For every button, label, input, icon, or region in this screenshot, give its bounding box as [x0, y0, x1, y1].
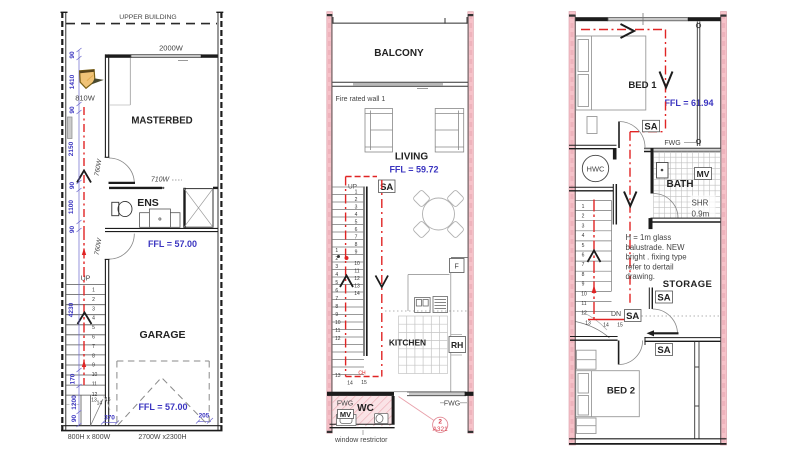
svg-text:13: 13	[335, 373, 341, 379]
svg-text:3: 3	[355, 205, 358, 211]
svg-text:90: 90	[69, 182, 76, 190]
svg-text:1: 1	[335, 248, 338, 254]
svg-text:BED 1: BED 1	[628, 80, 657, 91]
svg-text:1200: 1200	[71, 395, 78, 410]
svg-text:FFL = 61.94: FFL = 61.94	[664, 98, 713, 108]
svg-text:11: 11	[581, 301, 586, 307]
svg-text:WC: WC	[357, 403, 374, 414]
svg-text:6: 6	[355, 227, 358, 233]
svg-text:13: 13	[354, 284, 360, 290]
svg-text:SA: SA	[657, 293, 670, 304]
svg-text:6: 6	[582, 253, 585, 259]
svg-text:15: 15	[617, 323, 623, 329]
svg-text:MV: MV	[697, 169, 710, 179]
svg-text:BED 2: BED 2	[607, 386, 635, 397]
svg-text:UPPER BUILDING: UPPER BUILDING	[119, 14, 176, 21]
svg-text:BATH: BATH	[666, 179, 693, 190]
svg-text:FFL = 57.00: FFL = 57.00	[148, 239, 197, 249]
svg-text:8: 8	[335, 304, 338, 310]
svg-text:7: 7	[355, 235, 358, 241]
svg-text:3: 3	[582, 223, 585, 229]
svg-text:6: 6	[335, 288, 338, 294]
svg-text:1410: 1410	[69, 74, 76, 89]
svg-text:11: 11	[354, 269, 359, 275]
svg-text:5: 5	[92, 325, 95, 331]
svg-text:4: 4	[582, 233, 585, 239]
svg-text:7: 7	[92, 344, 95, 350]
svg-text:DN: DN	[611, 311, 621, 318]
svg-text:MASTERBED: MASTERBED	[131, 116, 192, 127]
svg-text:STORAGE: STORAGE	[663, 279, 713, 290]
svg-text:15: 15	[361, 380, 367, 386]
svg-text:2000W: 2000W	[159, 44, 184, 53]
svg-text:KITCHEN: KITCHEN	[389, 338, 426, 348]
svg-text:4: 4	[355, 212, 358, 218]
svg-text:refer to dertail: refer to dertail	[626, 262, 674, 271]
svg-text:15: 15	[105, 397, 111, 403]
svg-text:H = 1m glass: H = 1m glass	[626, 233, 672, 242]
svg-text:RH: RH	[451, 340, 463, 350]
svg-text:370: 370	[104, 415, 115, 422]
svg-text:ENS: ENS	[137, 197, 159, 209]
svg-text:11: 11	[92, 382, 97, 388]
svg-text:0.9m: 0.9m	[692, 210, 710, 219]
svg-text:7: 7	[582, 262, 585, 268]
svg-text:3: 3	[335, 264, 338, 270]
svg-text:7: 7	[335, 296, 338, 302]
svg-text:1100: 1100	[68, 200, 75, 214]
svg-text:FFL = 57.00: FFL = 57.00	[138, 402, 187, 412]
svg-text:800H x 800W: 800H x 800W	[68, 434, 111, 441]
svg-text:6: 6	[92, 335, 95, 341]
svg-text:window restrictor: window restrictor	[334, 437, 388, 444]
svg-text:205: 205	[199, 413, 210, 420]
svg-text:Fire rated wall 1: Fire rated wall 1	[336, 96, 386, 103]
svg-text:drawing.: drawing.	[626, 272, 655, 281]
svg-text:9: 9	[92, 363, 95, 369]
svg-text:10: 10	[581, 291, 587, 297]
svg-text:8: 8	[582, 272, 585, 278]
svg-text:14: 14	[354, 291, 360, 297]
svg-text:10: 10	[354, 261, 360, 267]
svg-text:2150: 2150	[68, 141, 75, 156]
svg-text:FFL = 59.72: FFL = 59.72	[389, 165, 438, 175]
svg-text:3: 3	[92, 306, 95, 312]
svg-text:90: 90	[69, 226, 76, 234]
svg-text:90: 90	[71, 415, 78, 423]
svg-text:FWG: FWG	[444, 401, 460, 408]
svg-text:2: 2	[355, 197, 358, 203]
svg-text:8: 8	[92, 353, 95, 359]
svg-text:F: F	[455, 264, 459, 271]
svg-text:14: 14	[97, 401, 103, 407]
svg-text:12: 12	[354, 276, 360, 282]
svg-text:1: 1	[92, 288, 95, 294]
svg-text:710W: 710W	[151, 177, 171, 184]
svg-text:810W: 810W	[75, 94, 96, 103]
svg-text:5: 5	[355, 220, 358, 226]
svg-text:12: 12	[581, 311, 587, 317]
svg-text:9: 9	[335, 312, 338, 318]
svg-text:A321: A321	[433, 426, 449, 433]
svg-text:14: 14	[603, 323, 609, 329]
svg-text:MV: MV	[340, 410, 351, 419]
svg-text:GARAGE: GARAGE	[139, 329, 185, 341]
svg-text:10: 10	[92, 372, 98, 378]
svg-text:5: 5	[582, 243, 585, 249]
svg-text:9: 9	[582, 282, 585, 288]
svg-text:4230: 4230	[68, 302, 75, 317]
svg-text:SA: SA	[626, 311, 639, 322]
svg-text:170: 170	[70, 373, 77, 384]
svg-text:bright . fixing type: bright . fixing type	[626, 253, 687, 262]
svg-text:14: 14	[347, 381, 353, 387]
svg-text:12: 12	[335, 336, 341, 342]
svg-text:LIVING: LIVING	[395, 152, 429, 163]
svg-text:11: 11	[335, 328, 340, 334]
svg-text:13: 13	[585, 320, 591, 326]
svg-text:5: 5	[335, 280, 338, 286]
svg-text:4: 4	[92, 316, 95, 322]
svg-text:CH: CH	[358, 371, 366, 377]
svg-text:10: 10	[335, 320, 341, 326]
svg-text:HWC: HWC	[587, 165, 605, 174]
svg-text:90: 90	[69, 51, 76, 59]
svg-text:2: 2	[438, 419, 442, 426]
svg-text:FWG: FWG	[664, 140, 680, 147]
svg-text:9: 9	[355, 250, 358, 256]
svg-text:UP: UP	[81, 276, 91, 283]
svg-text:4: 4	[335, 272, 338, 278]
svg-text:balustrade. NEW: balustrade. NEW	[626, 243, 686, 252]
svg-text:SA: SA	[644, 122, 657, 133]
svg-text:2: 2	[582, 214, 585, 220]
svg-text:BALCONY: BALCONY	[374, 48, 424, 59]
svg-text:90: 90	[69, 106, 76, 114]
svg-text:1: 1	[582, 204, 585, 210]
svg-text:2: 2	[92, 297, 95, 303]
svg-text:SHR: SHR	[692, 199, 709, 208]
svg-text:8: 8	[355, 242, 358, 248]
svg-text:SA: SA	[657, 345, 670, 356]
svg-text:2700W x2300H: 2700W x2300H	[138, 434, 186, 441]
svg-text:FWG: FWG	[337, 401, 353, 408]
svg-text:1: 1	[355, 190, 358, 196]
